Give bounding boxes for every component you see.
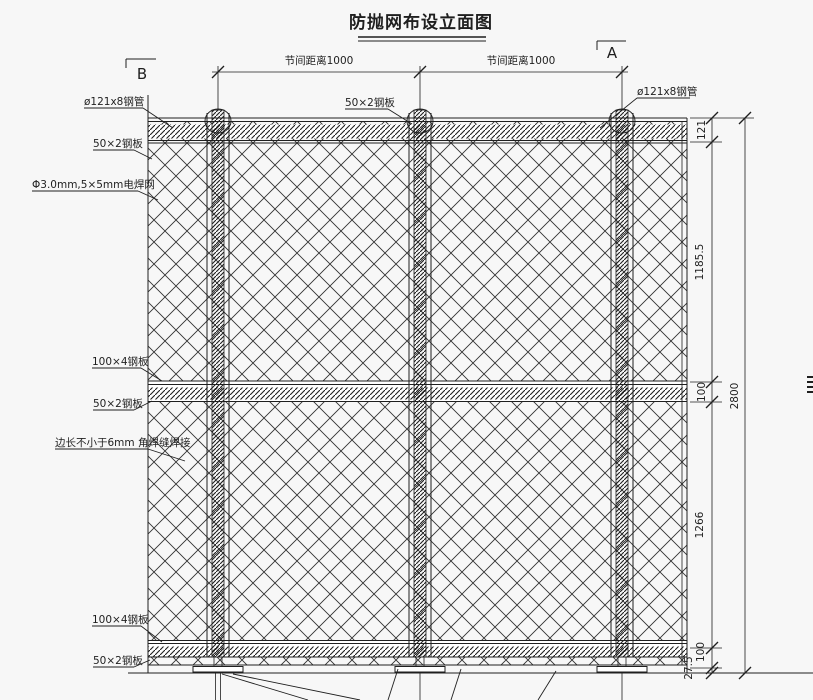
- post-1-pipe: [212, 110, 224, 657]
- callout-top-center-plate: 50×2钢板: [345, 96, 412, 124]
- bay-spacing-dim-1: 节间距离1000: [285, 54, 354, 67]
- dim-base: 27.5: [683, 656, 695, 679]
- page-title: 防抛网布设立面图: [349, 12, 493, 33]
- dim-lower-panel: 1266: [694, 511, 706, 538]
- post-2-pipe: [414, 110, 426, 657]
- post-3-pipe: [616, 110, 628, 657]
- post-2-base-plate: [395, 667, 445, 673]
- section-marker-a: A: [597, 41, 626, 62]
- callout-mid-left-plate50: 50×2钢板: [93, 397, 152, 410]
- callout-top-left-plate-label: 50×2钢板: [93, 137, 143, 150]
- clipped-edge-artifact: [807, 377, 813, 392]
- post-1-base-plate: [193, 667, 243, 673]
- leader-to-base-4: [451, 669, 461, 700]
- callout-top-left-plate: 50×2钢板: [93, 137, 152, 159]
- callout-bottom-left-plate100-label: 100×4钢板: [92, 613, 149, 626]
- dim-upper-panel: 1185.5: [694, 244, 706, 281]
- elevation-drawing: 防抛网布设立面图: [0, 0, 813, 700]
- drawing-title-block: 防抛网布设立面图: [349, 12, 493, 41]
- ground: [128, 669, 813, 700]
- dim-mid-rail: 100: [696, 382, 708, 402]
- callout-top-right-pipe-label: ø121x8钢管: [637, 85, 697, 98]
- bay-spacing-dim-2: 节间距离1000: [487, 54, 556, 67]
- post-3-base-plate: [597, 667, 647, 673]
- leader-to-base-3: [388, 669, 398, 700]
- callout-bottom-left-plate50: 50×2钢板: [93, 654, 150, 667]
- section-marker-b: B: [126, 59, 156, 83]
- callout-left-weld-label: 边长不小于6mm 角焊缝焊接: [55, 436, 191, 449]
- dim-pipe-121: 121: [696, 120, 708, 140]
- callout-top-left-pipe-label: ø121x8钢管: [84, 95, 144, 108]
- section-marker-b-label: B: [137, 65, 147, 83]
- drawing-canvas: 防抛网布设立面图: [0, 0, 813, 700]
- dim-overall-2800: 2800: [729, 383, 741, 410]
- callout-bottom-left-plate50-label: 50×2钢板: [93, 654, 143, 667]
- callout-top-center-plate-label: 50×2钢板: [345, 96, 395, 109]
- section-marker-a-label: A: [607, 44, 618, 62]
- callout-left-mesh-label: Φ3.0mm,5×5mm电焊网: [32, 178, 155, 191]
- callout-left-mesh: Φ3.0mm,5×5mm电焊网: [32, 178, 158, 200]
- dim-bottom-rail: 100: [695, 642, 707, 662]
- leader-to-base-5: [538, 671, 556, 700]
- callout-mid-left-plate50-label: 50×2钢板: [93, 397, 143, 410]
- right-dimensions: 121 1185.5 100 1266 100 27.5 2800: [683, 112, 754, 680]
- callout-mid-left-plate100-label: 100×4钢板: [92, 355, 149, 368]
